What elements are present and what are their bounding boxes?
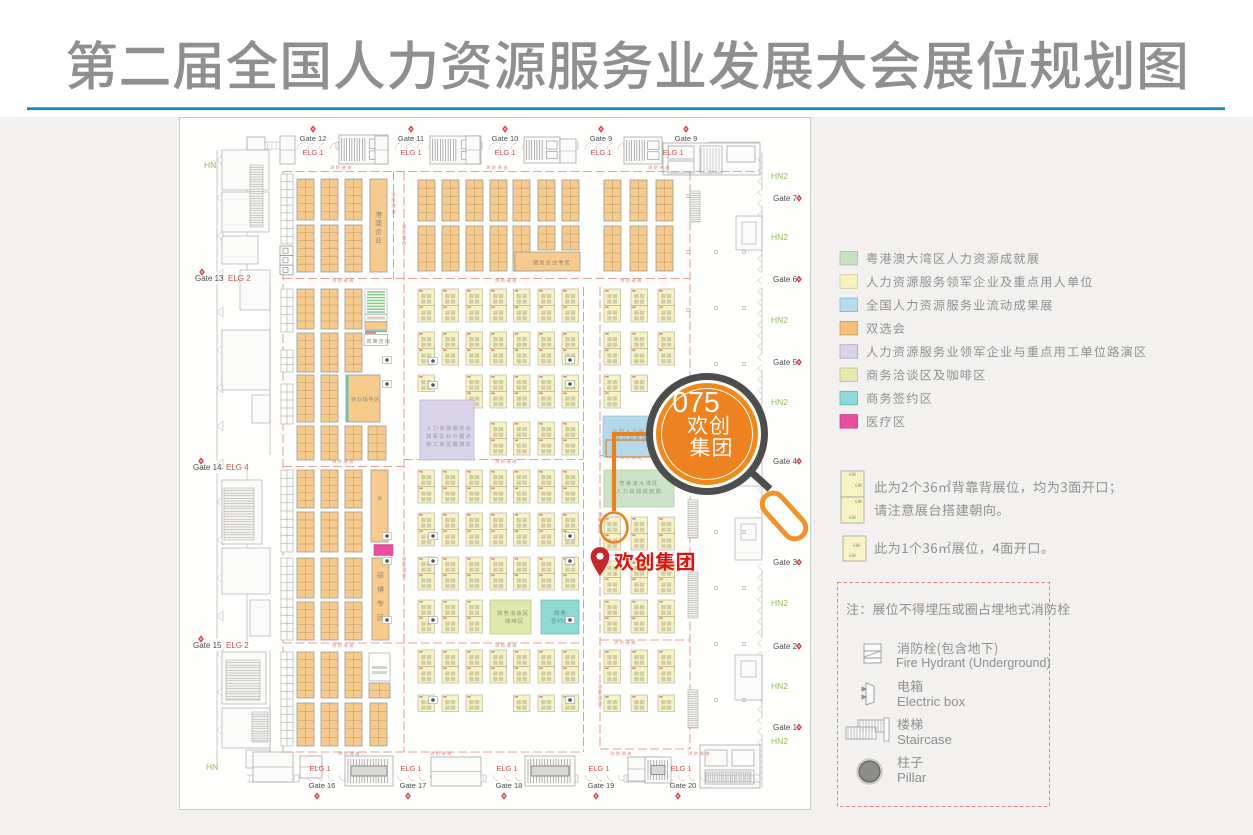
svg-text:Gate 20: Gate 20	[670, 781, 697, 790]
svg-text:Gate 15: Gate 15	[193, 641, 222, 650]
svg-text:Gate 3: Gate 3	[773, 558, 798, 567]
svg-text:Gate 16: Gate 16	[309, 781, 336, 790]
svg-text:HN2: HN2	[771, 315, 788, 325]
svg-text:ELG 1: ELG 1	[494, 148, 515, 157]
svg-text:HN2: HN2	[771, 598, 788, 608]
svg-text:ELG 1: ELG 1	[590, 148, 611, 157]
svg-text:ELG 1: ELG 1	[670, 764, 691, 773]
svg-text:HN2: HN2	[771, 397, 788, 407]
svg-text:Pillar: Pillar	[897, 770, 927, 785]
svg-text:HN: HN	[206, 762, 218, 772]
svg-text:Gate 12: Gate 12	[300, 134, 327, 143]
svg-text:HN2: HN2	[771, 171, 788, 181]
svg-text:ELG 4: ELG 4	[226, 463, 249, 472]
svg-text:Gate 10: Gate 10	[492, 134, 519, 143]
svg-text:Electric box: Electric box	[897, 694, 966, 709]
svg-text:ELG 2: ELG 2	[226, 641, 249, 650]
svg-text:ELG 2: ELG 2	[228, 274, 251, 283]
svg-text:Gate 14: Gate 14	[193, 463, 222, 472]
svg-text:Gate 4: Gate 4	[773, 457, 798, 466]
svg-text:Gate 9: Gate 9	[675, 134, 698, 143]
svg-text:Gate 19: Gate 19	[588, 781, 615, 790]
svg-text:Gate 17: Gate 17	[400, 781, 427, 790]
svg-text:HN2: HN2	[771, 232, 788, 242]
svg-text:Gate 2: Gate 2	[773, 642, 798, 651]
svg-text:HN2: HN2	[771, 736, 788, 746]
svg-text:ELG 1: ELG 1	[496, 764, 517, 773]
svg-text:Gate 5: Gate 5	[773, 358, 798, 367]
svg-text:Gate 9: Gate 9	[590, 134, 613, 143]
svg-text:075: 075	[672, 387, 720, 419]
svg-text:ELG 1: ELG 1	[662, 148, 683, 157]
svg-text:HN: HN	[204, 160, 216, 170]
svg-text:ELG 1: ELG 1	[302, 148, 323, 157]
svg-text:Gate 13: Gate 13	[195, 274, 224, 283]
svg-text:Staircase: Staircase	[897, 732, 952, 747]
svg-text:ELG 1: ELG 1	[400, 764, 421, 773]
svg-text:ELG 1: ELG 1	[309, 764, 330, 773]
svg-text:ELG 1: ELG 1	[588, 764, 609, 773]
svg-text:ELG 1: ELG 1	[400, 148, 421, 157]
svg-text:HN2: HN2	[771, 681, 788, 691]
svg-text:Gate 7: Gate 7	[773, 194, 798, 203]
svg-text:Fire Hydrant (Underground): Fire Hydrant (Underground)	[896, 656, 1051, 670]
svg-text:Gate 11: Gate 11	[398, 134, 424, 143]
svg-text:Gate 1: Gate 1	[773, 723, 798, 732]
svg-text:Gate 18: Gate 18	[496, 781, 523, 790]
svg-text:Gate 6: Gate 6	[773, 275, 798, 284]
